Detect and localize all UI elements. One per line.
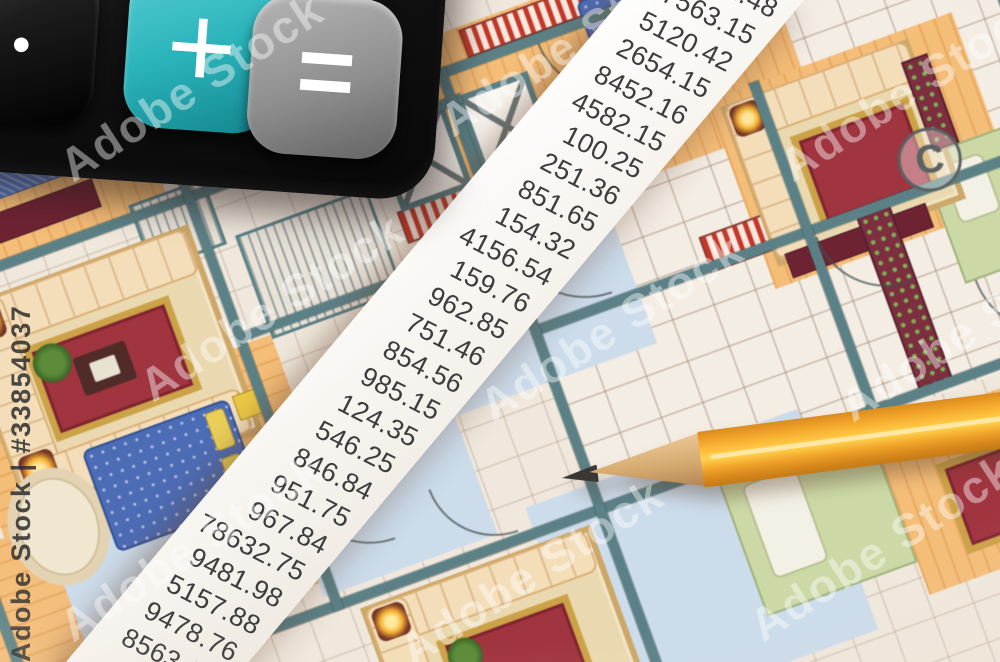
equals-icon: = [294,20,357,124]
bathtub [741,466,830,580]
decimal-button[interactable]: ● [0,0,102,128]
equals-button[interactable]: = [244,0,405,162]
decimal-dot-icon: ● [10,26,33,61]
pencil-graphite-tip [561,464,599,487]
plus-icon: + [162,0,240,109]
calculator: ● + = [0,0,458,202]
stock-photo: C 62.487563.155120.422654.158452.164582.… [0,0,1000,662]
